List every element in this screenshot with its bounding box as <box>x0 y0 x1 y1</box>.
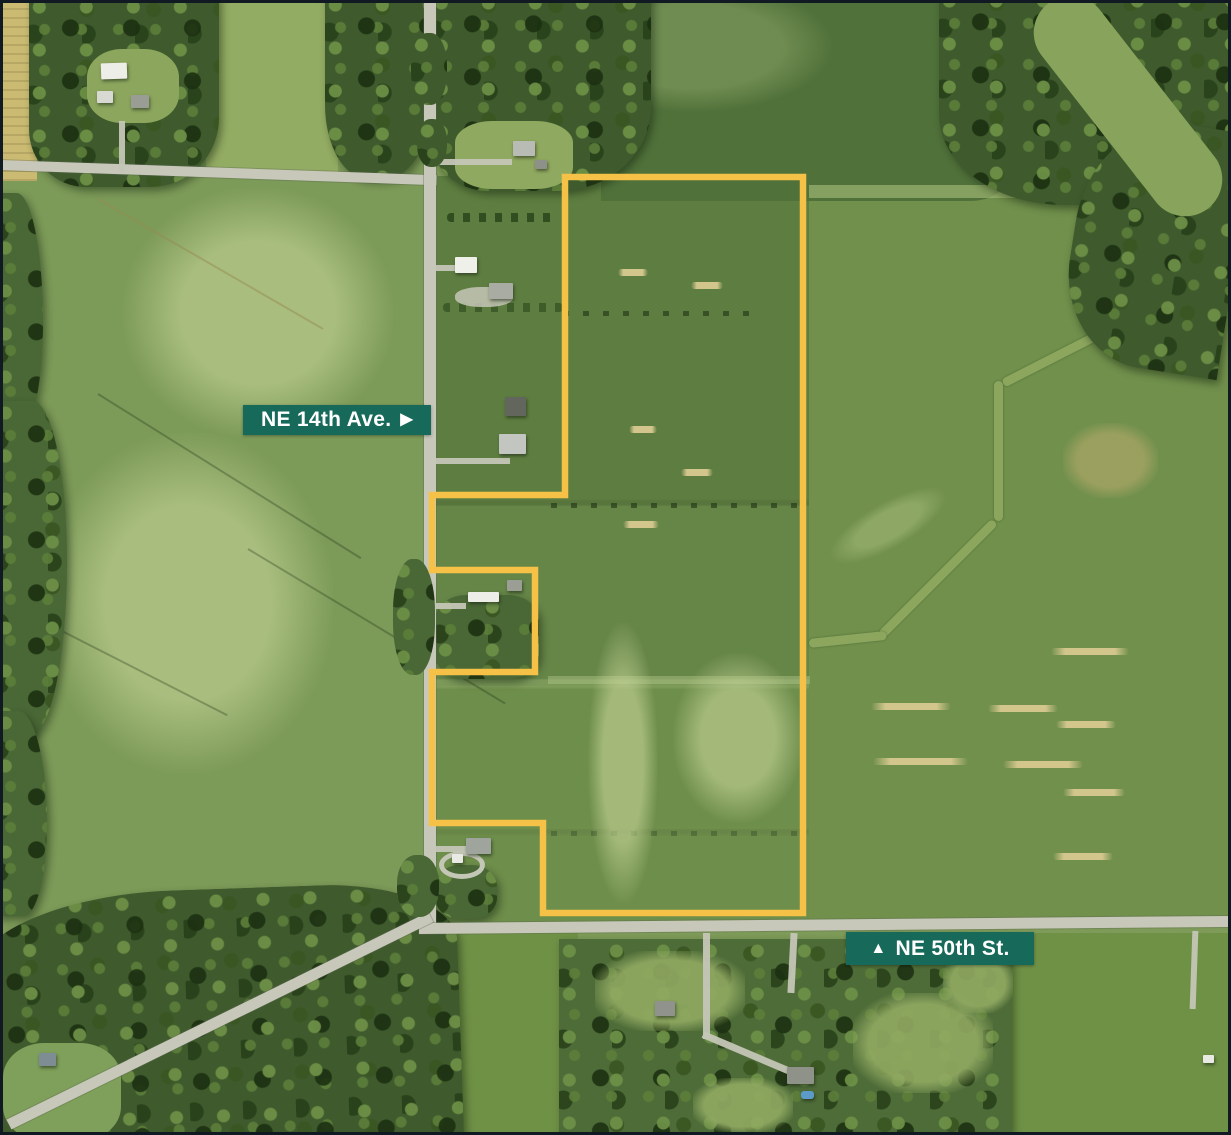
field-mark <box>1063 789 1125 796</box>
driveway <box>436 159 512 165</box>
driveway <box>436 458 510 464</box>
field-mark <box>1053 853 1113 860</box>
building <box>513 141 535 156</box>
field-mark <box>43 433 333 773</box>
right-arrow-icon: ▶ <box>400 412 413 428</box>
swimming-pool <box>801 1091 814 1099</box>
field-mark <box>588 623 658 903</box>
tree-tuft <box>417 119 447 167</box>
driveway <box>119 121 125 173</box>
grass-waterway <box>994 381 1003 521</box>
hedgerow <box>447 213 559 222</box>
building <box>466 838 491 854</box>
field-mark <box>623 521 659 528</box>
building <box>489 283 513 299</box>
field-mark <box>988 705 1058 712</box>
driveway <box>703 933 710 1039</box>
building <box>655 1001 675 1016</box>
field-mark <box>1051 648 1129 655</box>
building <box>499 434 526 454</box>
field-mark <box>871 703 951 710</box>
building <box>787 1067 814 1084</box>
aerial-map-canvas: NE 14th Ave. ▶ ▲ NE 50th St. <box>0 0 1231 1135</box>
field-mark <box>629 426 657 433</box>
field-mark <box>673 653 803 823</box>
road-label-text: NE 14th Ave. <box>261 408 391 432</box>
building <box>101 63 128 80</box>
field-mark <box>873 758 968 765</box>
building <box>507 580 522 591</box>
field-mark <box>1003 761 1083 768</box>
driveway <box>436 603 466 609</box>
road-label-ne-14th-ave: NE 14th Ave. ▶ <box>243 405 431 435</box>
field-mark <box>123 188 393 438</box>
field-mark <box>1056 721 1116 728</box>
field-mark <box>551 503 806 508</box>
tree-tuft <box>411 33 447 105</box>
building <box>1203 1055 1214 1063</box>
field-mark <box>1063 423 1158 498</box>
building <box>535 160 547 169</box>
grass-gap-north <box>206 3 338 175</box>
building <box>468 592 499 602</box>
road-label-ne-50th-st: ▲ NE 50th St. <box>846 932 1034 965</box>
building <box>131 95 149 108</box>
building <box>452 854 463 863</box>
tree-tuft <box>393 559 435 675</box>
residential-lawn <box>693 1078 793 1133</box>
farm-clearing-northwest <box>87 49 179 123</box>
field-mark <box>618 269 648 276</box>
up-arrow-icon: ▲ <box>870 941 886 957</box>
building <box>505 397 526 416</box>
building <box>455 257 477 273</box>
tree-tuft <box>397 855 439 917</box>
field-mark <box>691 282 723 289</box>
field-mark <box>563 311 763 316</box>
field-mark <box>681 469 713 476</box>
road-label-text: NE 50th St. <box>895 937 1009 961</box>
residential-lawn <box>595 951 745 1031</box>
building <box>97 91 113 103</box>
building <box>39 1053 56 1066</box>
